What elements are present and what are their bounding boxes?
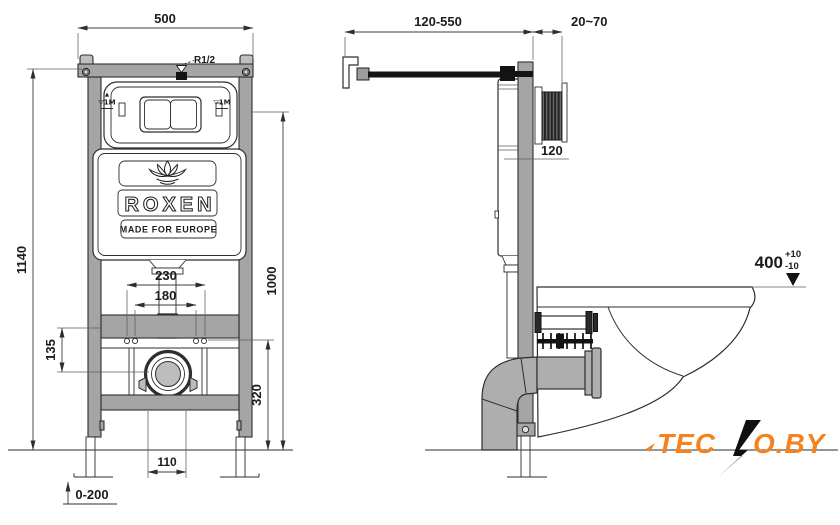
tecno-watermark: TEC O.BY [646,420,827,477]
supply-connector [357,68,369,80]
level-mark-left: ▽1M [98,99,115,107]
leg-side [521,436,530,477]
bottom-crossbar [101,395,239,410]
inlet-plate [594,314,598,332]
supply-rod [368,72,502,78]
right-wall-bracket [240,55,253,64]
outlet-pipe [537,357,587,389]
tank-neck [149,260,186,268]
plate-box-back [535,87,542,144]
dim-bowl-height-label: 400 [755,253,783,272]
right-leg [236,437,245,477]
supply-stub [515,71,533,77]
outlet-cap [592,348,601,398]
flush-button-large [171,100,197,129]
dim-leg-adjust-label: 0-200 [75,487,108,502]
left-bolt-center [85,71,87,73]
rail-nub-left [100,421,104,430]
level-mark-right: ▽1M [213,99,230,107]
front-view: R1/2 ▲ ▽1M ▽1M ROXEN MADE FOR EUROPE [8,11,293,504]
middle-crossbar [101,315,239,338]
thread-label: R1/2 [194,55,216,66]
fixing-hole [193,338,198,343]
dim-plate-height-label: 1000 [264,267,279,296]
outlet-flange [585,351,592,395]
datum-triangle-icon [786,273,800,286]
inlet-plate [535,313,541,333]
drain-socket-inner [156,362,181,387]
watermark-text-left: TEC [657,428,716,459]
side-view: 120-550 20~70 120 400 +10 -10 [343,14,838,477]
plate-box-hatched [542,92,562,140]
bowl-height-tol-minus: -10 [785,261,799,272]
fixing-hole [201,338,206,343]
cistern-nub [495,211,499,218]
dim-holes-label: 230 [155,268,177,283]
top-crossbar [78,64,253,77]
flush-button-small [145,100,171,129]
rail-nub-right [237,421,241,430]
brand-tagline: MADE FOR EUROPE [120,225,218,235]
inlet-pipe-side [540,316,587,329]
dim-depth-label: 120 [541,143,563,158]
logo-panel [119,161,216,186]
fixing-hole [132,338,137,343]
inlet-plate [586,312,592,334]
watermark-text-right: O.BY [753,428,827,459]
drain-tab-left [139,378,146,392]
left-leg [86,437,95,477]
drain-tab-right [190,378,197,392]
strut-right [202,348,207,395]
dim-drain-height-label: 320 [249,384,264,406]
bowl-height-tol-plus: +10 [785,249,801,260]
inlet-port [176,72,187,80]
brand-name: ROXEN [124,194,215,216]
dim-outlet-label: 110 [157,455,177,469]
fixing-hole [124,338,129,343]
stud-threads [543,333,591,349]
dim-hose-label: 120-550 [414,14,462,29]
right-bolt-center [245,71,247,73]
technical-drawing-canvas: R1/2 ▲ ▽1M ▽1M ROXEN MADE FOR EUROPE [0,0,840,525]
dim-wall-label: 20~70 [571,14,608,29]
threaded-stud [537,339,593,344]
supply-valve [500,66,515,81]
plate-box-flange [562,83,567,142]
dim-width-label: 500 [154,11,176,26]
leg-bolt-icon [522,426,528,432]
installation-frame-drawing: R1/2 ▲ ▽1M ▽1M ROXEN MADE FOR EUROPE [0,0,840,525]
dim-height-label: 1140 [14,246,29,274]
watermark-tick [646,443,655,452]
stud-nut [556,334,564,349]
supply-wall-clip [343,57,358,88]
strut-left [129,348,134,395]
plate-clip-left [119,103,125,116]
left-wall-bracket [80,55,93,64]
dim-offset-label: 135 [43,339,58,361]
dim-inner-label: 180 [155,288,177,303]
